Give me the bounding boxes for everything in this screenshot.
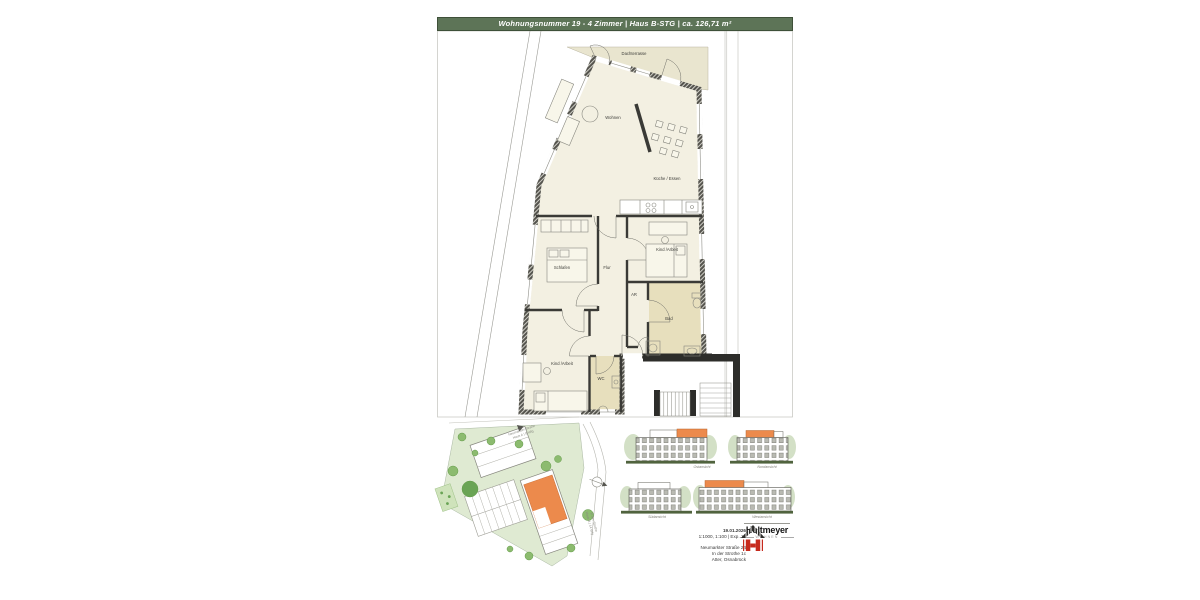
room-label-wohnen: Wohnen xyxy=(605,115,621,120)
plan-scale: 1:1000, 1:100 | Exp. 19 xyxy=(648,534,746,540)
wardrobe xyxy=(541,220,588,232)
room-label-kueche: Küche / Essen xyxy=(653,176,681,181)
bed-kind2 xyxy=(534,391,587,411)
exposee-sheet: { "header": { "title": "Wohnungsnummer 1… xyxy=(0,0,1200,600)
room-label-bad: Bad xyxy=(665,316,673,321)
room-label-flur: Flur xyxy=(603,265,611,270)
room-label-dachterrasse: Dachterrasse xyxy=(622,51,648,56)
room-label-kind2: Kind /Arbeit xyxy=(551,361,573,366)
kitchen-counter xyxy=(620,200,702,214)
caption-nordansicht: Nordansicht xyxy=(757,465,777,469)
elevation-nord: Nordansicht xyxy=(730,431,793,470)
room-label-kind1: Kind /Arbeit xyxy=(656,247,678,252)
elevation-west: Westansicht xyxy=(696,481,793,520)
address-line-3: Atter, Osnabrück xyxy=(648,557,746,563)
site-plan: Neumarkter Straße Haus A | 8 Wfg In der … xyxy=(435,417,609,566)
room-label-wc: WC xyxy=(598,376,605,381)
company-logo: Holtmeyer WOHNEN xyxy=(740,523,794,540)
north-compass xyxy=(588,475,609,491)
caption-suedansicht: Südansicht xyxy=(648,515,667,519)
caption-ostansicht: Ostansicht xyxy=(694,465,712,469)
logo-subtitle-line-right xyxy=(781,537,795,538)
elevations: Ostansicht Nordansicht Südansicht Westan… xyxy=(620,429,796,519)
page-title: Wohnungsnummer 19 - 4 Zimmer | Haus B-ST… xyxy=(498,19,731,28)
title-bar: Wohnungsnummer 19 - 4 Zimmer | Haus B-ST… xyxy=(437,17,793,31)
elevation-ost: Ostansicht xyxy=(626,429,715,469)
room-label-schlafen: Schlafen xyxy=(554,265,571,270)
room-label-ar: AR xyxy=(631,292,637,297)
holtmeyer-house-icon xyxy=(740,524,766,552)
info-block: 19.01.2026 1:1000, 1:100 | Exp. 19 Neuma… xyxy=(648,528,746,563)
bad-floor xyxy=(649,283,703,355)
drawing-svg: Dachterrasse Wohnen Küche / Essen Schlaf… xyxy=(0,0,1200,600)
plan-sheet: Dachterrasse Wohnen Küche / Essen Schlaf… xyxy=(438,31,793,417)
caption-westansicht: Westansicht xyxy=(752,515,773,519)
